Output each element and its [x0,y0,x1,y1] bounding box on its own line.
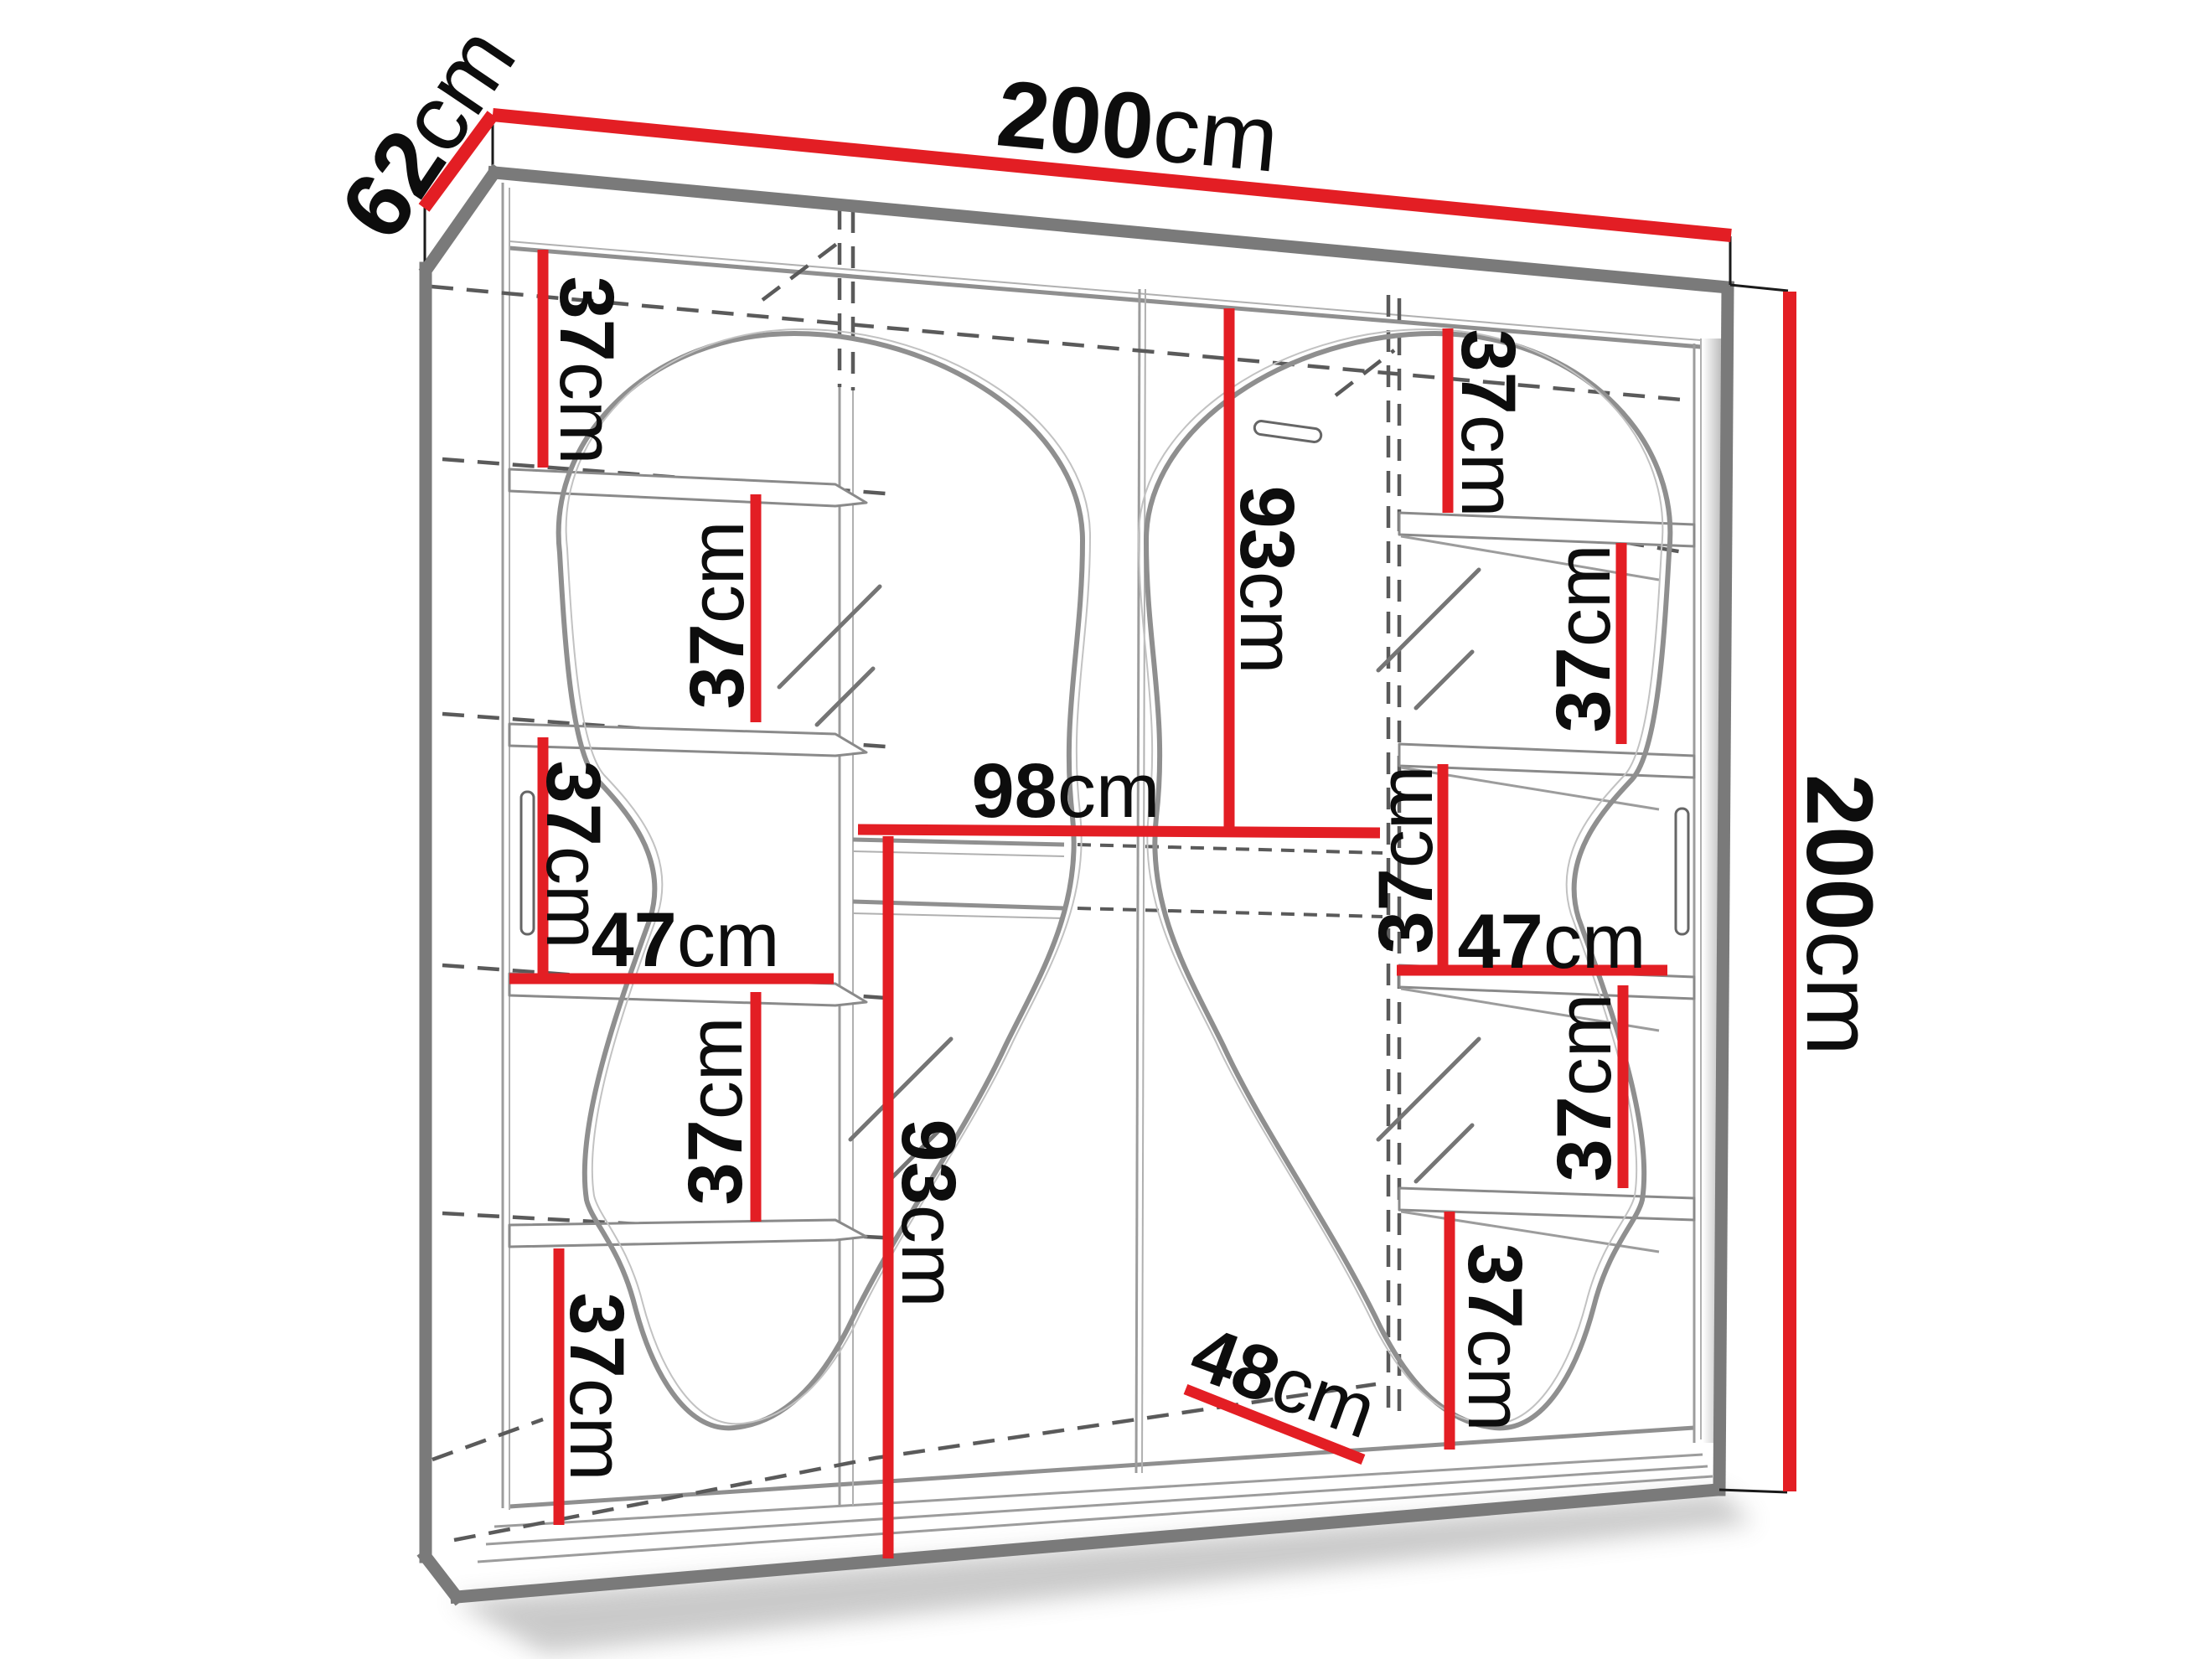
dim-l-gap5-label: 37cm [554,1293,639,1481]
dim-l-gap2-label: 37cm [674,521,760,710]
left-shelf-4 [509,1220,866,1247]
ext-line-top-right-2 [1730,285,1788,291]
left-shelf-2 [509,724,866,756]
ext-line-bottom-right [1719,1490,1787,1492]
dashed-corner-bl [432,1419,543,1460]
dim-l-gap4-label: 37cm [673,1017,758,1206]
dashed-rail-lower [1078,908,1382,917]
right-shelf-4 [1399,1188,1694,1220]
hanging-rod [1253,421,1321,443]
right-door-handle [1676,809,1688,934]
dim-r-gap2-label: 37cm [1541,545,1626,733]
floor-line [509,1428,1694,1507]
ceiling-line-inner [509,241,1701,340]
right-shelf-1 [1399,513,1694,546]
dim-opening-w-label: 98cm [972,748,1160,834]
diagram-canvas: 200cm 62cm 200cm 37cm 37cm 37cm 47cm 37c… [0,0,2212,1659]
dim-l-gap1-label: 37cm [544,276,629,465]
dim-r-shelf-w-label: 47cm [1458,899,1646,985]
dim-r-gap4-label: 37cm [1542,994,1627,1182]
dim-r-hang-h-label: 93cm [1224,486,1310,674]
bottom-left-bevel [426,1557,457,1597]
dashed-rail-upper [1078,845,1382,853]
dim-r-gap1-label: 37cm [1445,329,1531,518]
wardrobe-dimension-diagram: 200cm 62cm 200cm 37cm 37cm 37cm 47cm 37c… [0,0,2212,1659]
right-outer-edge [1719,287,1728,1490]
dim-l-shelf-w-label: 47cm [592,897,780,983]
dim-r-gap5-label: 37cm [1452,1243,1538,1432]
door-gap-line [1136,289,1140,1473]
dim-l-hang-h-label: 93cm [886,1119,971,1308]
door-gap-line-2 [1142,289,1145,1473]
top-front-edge [494,173,1728,287]
dim-r-gap3-label: 37cm [1363,766,1449,954]
dim-height-label: 200cm [1788,774,1893,1056]
